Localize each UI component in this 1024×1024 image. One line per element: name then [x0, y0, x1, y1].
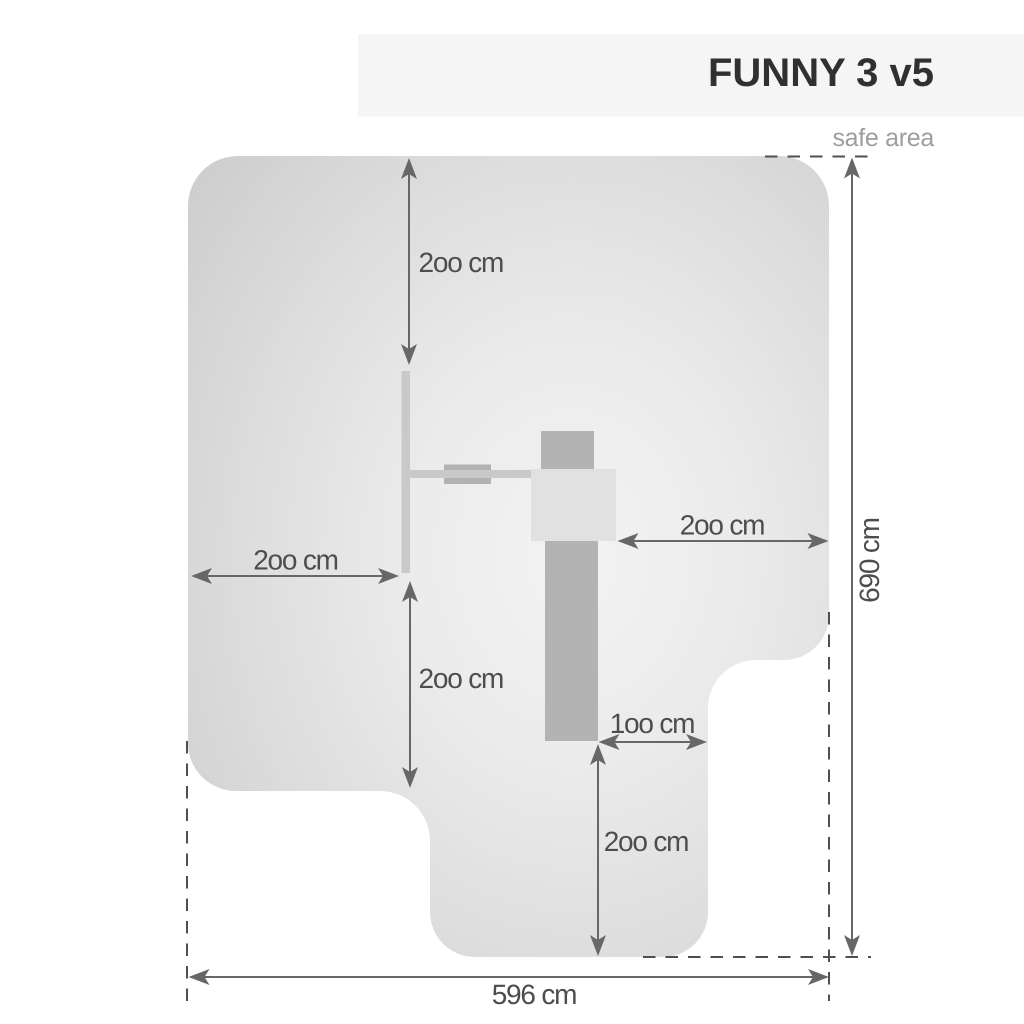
svg-text:596 cm: 596 cm [492, 979, 577, 1010]
svg-text:2oo cm: 2oo cm [680, 510, 765, 541]
svg-text:2oo cm: 2oo cm [604, 826, 689, 857]
svg-text:2oo cm: 2oo cm [419, 247, 504, 278]
svg-text:2oo cm: 2oo cm [419, 663, 504, 694]
svg-text:safe area: safe area [832, 124, 934, 152]
svg-text:1oo cm: 1oo cm [610, 708, 695, 739]
svg-text:2oo cm: 2oo cm [253, 545, 338, 576]
svg-text:690 cm: 690 cm [854, 518, 885, 603]
svg-text:FUNNY 3 v5: FUNNY 3 v5 [708, 51, 934, 95]
